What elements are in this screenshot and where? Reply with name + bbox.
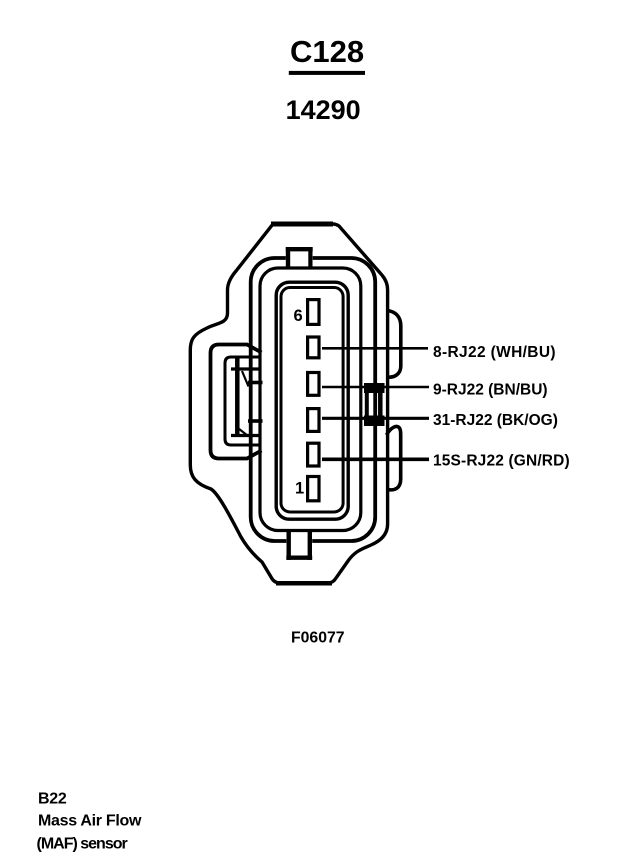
svg-text:6: 6	[294, 307, 303, 325]
svg-text:15S-RJ22 (GN/RD): 15S-RJ22 (GN/RD)	[433, 453, 570, 470]
svg-text:C128: C128	[290, 34, 364, 69]
svg-text:(MAF) sensor: (MAF) sensor	[37, 836, 128, 853]
svg-text:31-RJ22 (BK/OG): 31-RJ22 (BK/OG)	[433, 412, 558, 429]
svg-text:9-RJ22 (BN/BU): 9-RJ22 (BN/BU)	[433, 382, 548, 399]
svg-text:Mass Air Flow: Mass Air Flow	[38, 813, 142, 830]
svg-text:14290: 14290	[286, 95, 361, 125]
svg-text:1: 1	[295, 480, 304, 498]
svg-text:B22: B22	[38, 791, 67, 808]
svg-text:F06077: F06077	[291, 630, 345, 647]
svg-text:8-RJ22 (WH/BU): 8-RJ22 (WH/BU)	[433, 344, 556, 361]
